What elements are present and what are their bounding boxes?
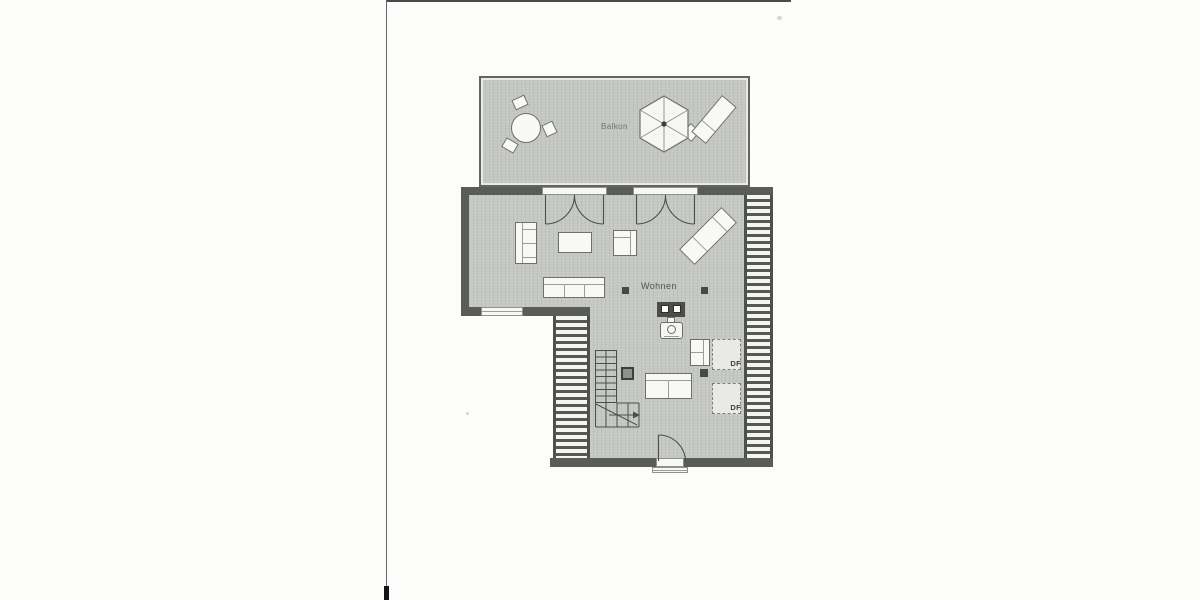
roof-window-label: DF (730, 403, 741, 412)
page-corner-tick (384, 586, 389, 600)
roof-window-icon: DF (712, 339, 741, 370)
column-post-icon (621, 367, 634, 380)
column-post-icon (700, 369, 708, 377)
balcony-door-opening-right (633, 187, 698, 195)
scan-speck (777, 16, 782, 20)
window-icon (481, 307, 523, 316)
wall-top (461, 187, 773, 195)
scan-speck (466, 412, 469, 415)
wood-stove-icon (657, 302, 685, 340)
page-left-edge-line (386, 0, 387, 598)
roof-slope-hatch-icon (744, 195, 773, 458)
entry-door-opening (656, 458, 684, 467)
coffee-table-icon (558, 232, 592, 253)
column-post-icon (701, 287, 708, 294)
column-post-icon (622, 287, 629, 294)
balcony-door-opening-left (542, 187, 607, 195)
living-room-label: Wohnen (641, 281, 677, 291)
entry-door-threshold (652, 467, 688, 473)
round-table-icon (511, 113, 541, 143)
page-top-edge-line (387, 0, 791, 2)
scanned-floorplan-page: DF DF (0, 0, 1200, 600)
sofa-icon (543, 277, 605, 298)
armchair-icon (690, 339, 710, 366)
armchair-icon (613, 230, 637, 256)
roof-window-icon: DF (712, 383, 741, 414)
roof-window-label: DF (730, 359, 741, 368)
loveseat-icon (515, 222, 537, 264)
sofa-icon (645, 373, 692, 399)
roof-slope-hatch-icon (553, 316, 590, 458)
stove-flue-box (657, 302, 685, 317)
balcony-label: Balkon (601, 122, 628, 131)
wall-left (461, 187, 469, 315)
